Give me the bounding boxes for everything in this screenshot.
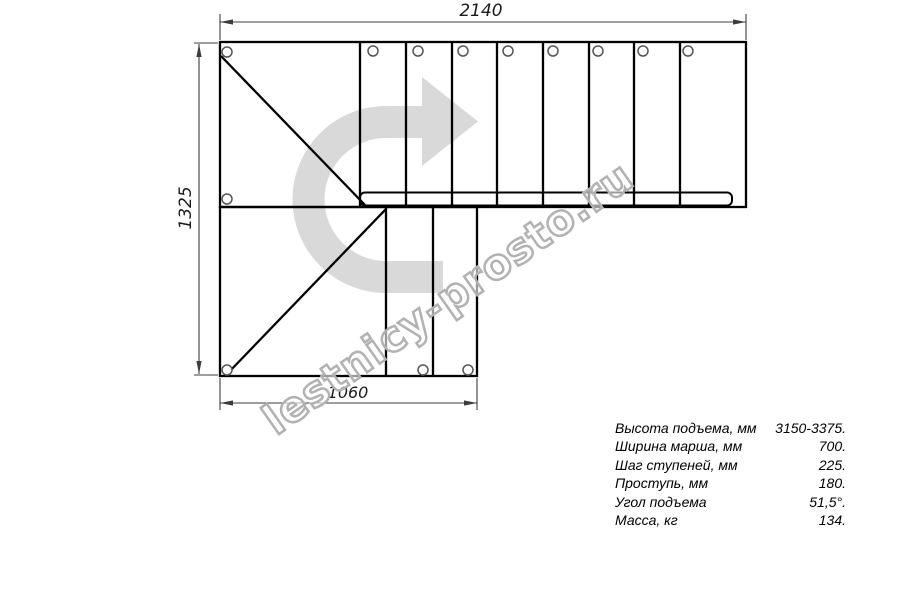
stringer-beam (360, 193, 732, 206)
dimension-bottom-label: 1060 (328, 383, 369, 402)
dimension-left (194, 43, 218, 375)
spec-label: Шаг ступеней, мм (615, 456, 738, 474)
spec-label: Высота подъема, мм (615, 419, 757, 437)
spec-label: Масса, кг (615, 511, 678, 529)
spec-value: 51,5°. (809, 493, 846, 511)
spec-row-height: Высота подъема, мм 3150-3375. (615, 419, 846, 437)
spec-row-tread: Проступь, мм 180. (615, 474, 846, 492)
dimension-top-label: 2140 (459, 1, 502, 21)
spec-value: 225. (819, 456, 846, 474)
spec-row-width: Ширина марша, мм 700. (615, 437, 846, 455)
spec-row-mass: Масса, кг 134. (615, 511, 846, 529)
spec-label: Проступь, мм (615, 474, 708, 492)
spec-value: 134. (819, 511, 846, 529)
spec-value: 180. (819, 474, 846, 492)
spec-value: 3150-3375. (775, 419, 846, 437)
spec-table: Высота подъема, мм 3150-3375. Ширина мар… (615, 419, 846, 529)
staircase-plan-canvas: 2140 1325 1060 lestnicy-prosto.ru Высота… (0, 0, 900, 600)
fastener-circles (222, 46, 693, 375)
spec-row-angle: Угол подъема 51,5°. (615, 493, 846, 511)
spec-label: Ширина марша, мм (615, 437, 742, 455)
spec-label: Угол подъема (615, 493, 707, 511)
spec-value: 700. (819, 437, 846, 455)
dimension-left-label: 1325 (176, 186, 196, 229)
spec-row-step: Шаг ступеней, мм 225. (615, 456, 846, 474)
